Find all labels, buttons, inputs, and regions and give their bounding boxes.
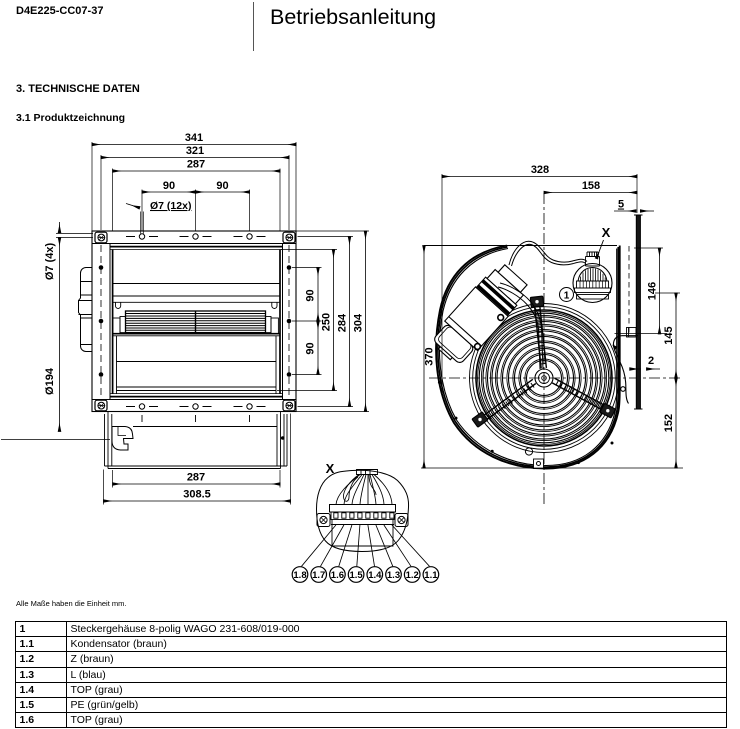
svg-text:Ø194: Ø194 <box>44 367 56 395</box>
svg-text:308.5: 308.5 <box>183 489 211 501</box>
svg-text:1.1: 1.1 <box>424 570 438 581</box>
svg-text:Ø7 (4x): Ø7 (4x) <box>44 243 56 281</box>
svg-text:146: 146 <box>647 282 659 300</box>
svg-text:287: 287 <box>187 159 205 171</box>
svg-text:90: 90 <box>305 289 317 301</box>
svg-text:2: 2 <box>648 355 654 367</box>
svg-text:370: 370 <box>424 347 436 365</box>
svg-text:145: 145 <box>663 326 675 344</box>
svg-text:Ø7 (12x): Ø7 (12x) <box>150 200 191 212</box>
svg-text:1: 1 <box>564 290 570 301</box>
svg-text:287: 287 <box>187 472 205 484</box>
svg-text:90: 90 <box>216 180 228 192</box>
svg-text:152: 152 <box>663 414 675 432</box>
svg-text:284: 284 <box>337 313 349 332</box>
svg-text:158: 158 <box>582 180 600 192</box>
svg-text:1.5: 1.5 <box>349 570 363 581</box>
svg-text:321: 321 <box>186 145 204 157</box>
svg-text:1.4: 1.4 <box>368 570 382 581</box>
svg-text:304: 304 <box>353 313 365 332</box>
svg-text:341: 341 <box>185 132 203 144</box>
svg-text:1.3: 1.3 <box>387 570 400 581</box>
svg-text:X: X <box>602 225 611 240</box>
svg-text:1.2: 1.2 <box>406 570 419 581</box>
svg-text:1.8: 1.8 <box>293 570 306 581</box>
svg-text:1.6: 1.6 <box>331 570 344 581</box>
svg-text:1.7: 1.7 <box>312 570 325 581</box>
svg-text:5: 5 <box>618 199 624 211</box>
svg-text:90: 90 <box>163 180 175 192</box>
svg-text:328: 328 <box>531 164 549 176</box>
svg-text:250: 250 <box>321 313 333 331</box>
svg-text:90: 90 <box>305 342 317 354</box>
